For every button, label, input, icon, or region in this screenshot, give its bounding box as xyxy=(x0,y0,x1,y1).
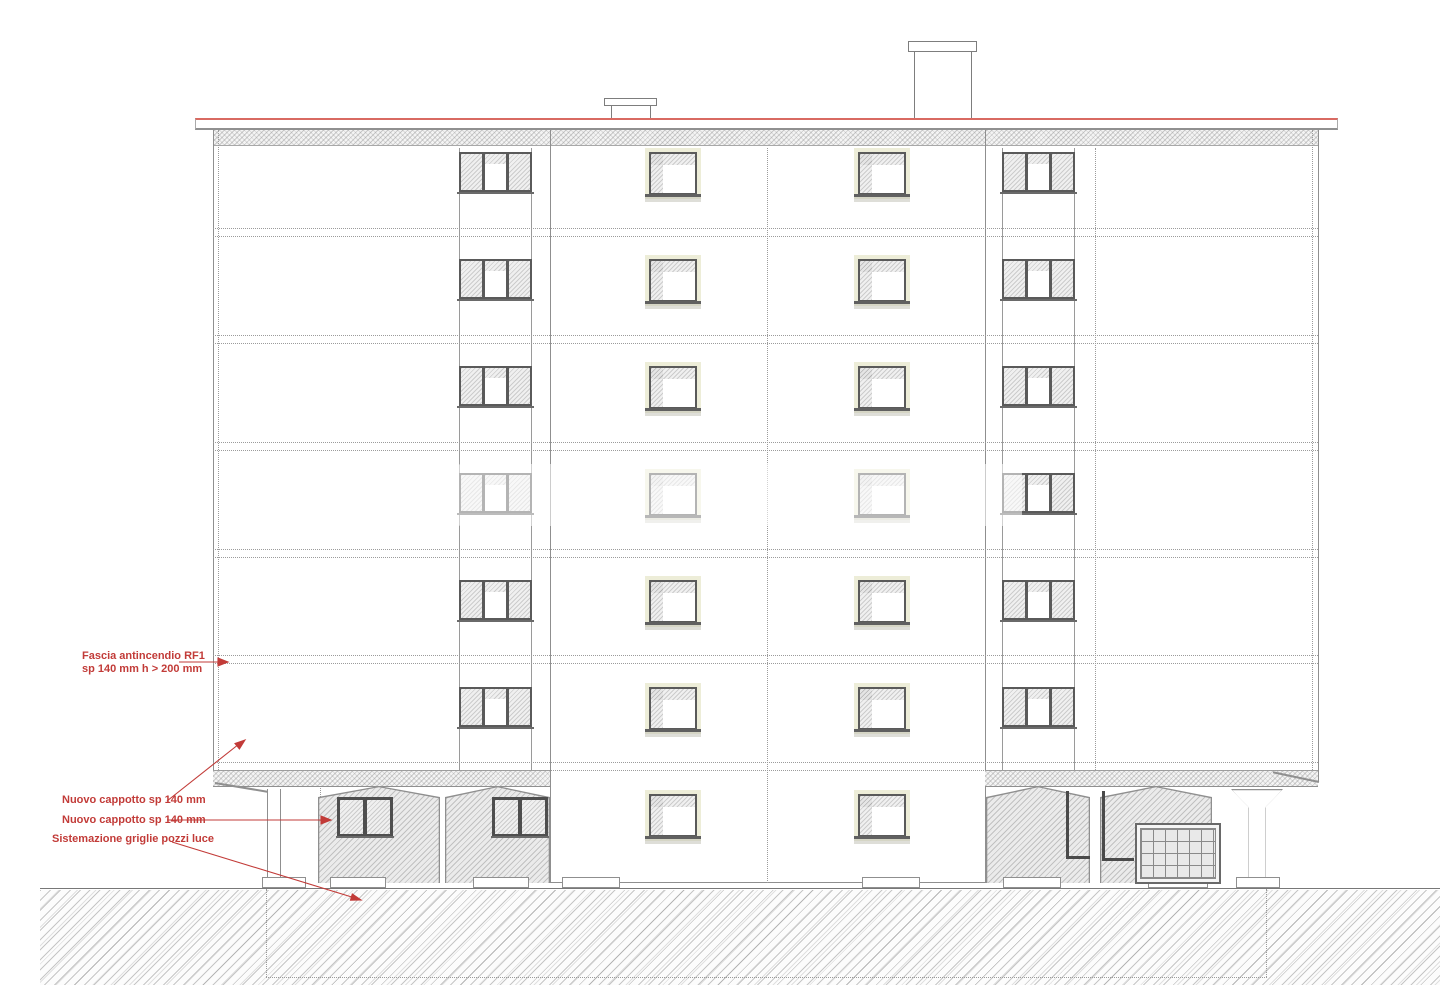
annotation-fascia-antincendio: Fascia antincendio RF1 sp 140 mm h > 200… xyxy=(82,650,205,676)
annotation-griglie-line1: Sistemazione griglie pozzi luce xyxy=(52,833,214,846)
annotation-cappotto-upper-line1: Nuovo cappotto sp 140 mm xyxy=(62,794,206,807)
annotation-fascia-line1: Fascia antincendio RF1 xyxy=(82,650,205,663)
annotation-cappotto-upper: Nuovo cappotto sp 140 mm xyxy=(62,794,206,807)
leader-cappotto-upper xyxy=(167,744,239,801)
elevation-drawing: Fascia antincendio RF1 sp 140 mm h > 200… xyxy=(0,0,1440,991)
annotation-fascia-line2: sp 140 mm h > 200 mm xyxy=(82,663,205,676)
annotation-cappotto-lower: Nuovo cappotto sp 140 mm xyxy=(62,814,206,827)
annotation-griglie: Sistemazione griglie pozzi luce xyxy=(52,833,214,846)
annotation-cappotto-lower-line1: Nuovo cappotto sp 140 mm xyxy=(62,814,206,827)
leader-griglie xyxy=(172,842,355,898)
leader-cappotto-upper-arrow xyxy=(235,740,245,749)
annotation-leader-lines xyxy=(0,0,1440,991)
leader-fascia-arrow xyxy=(218,658,228,666)
leader-cappotto-lower-arrow xyxy=(321,816,331,824)
leader-griglie-arrow xyxy=(351,894,362,900)
